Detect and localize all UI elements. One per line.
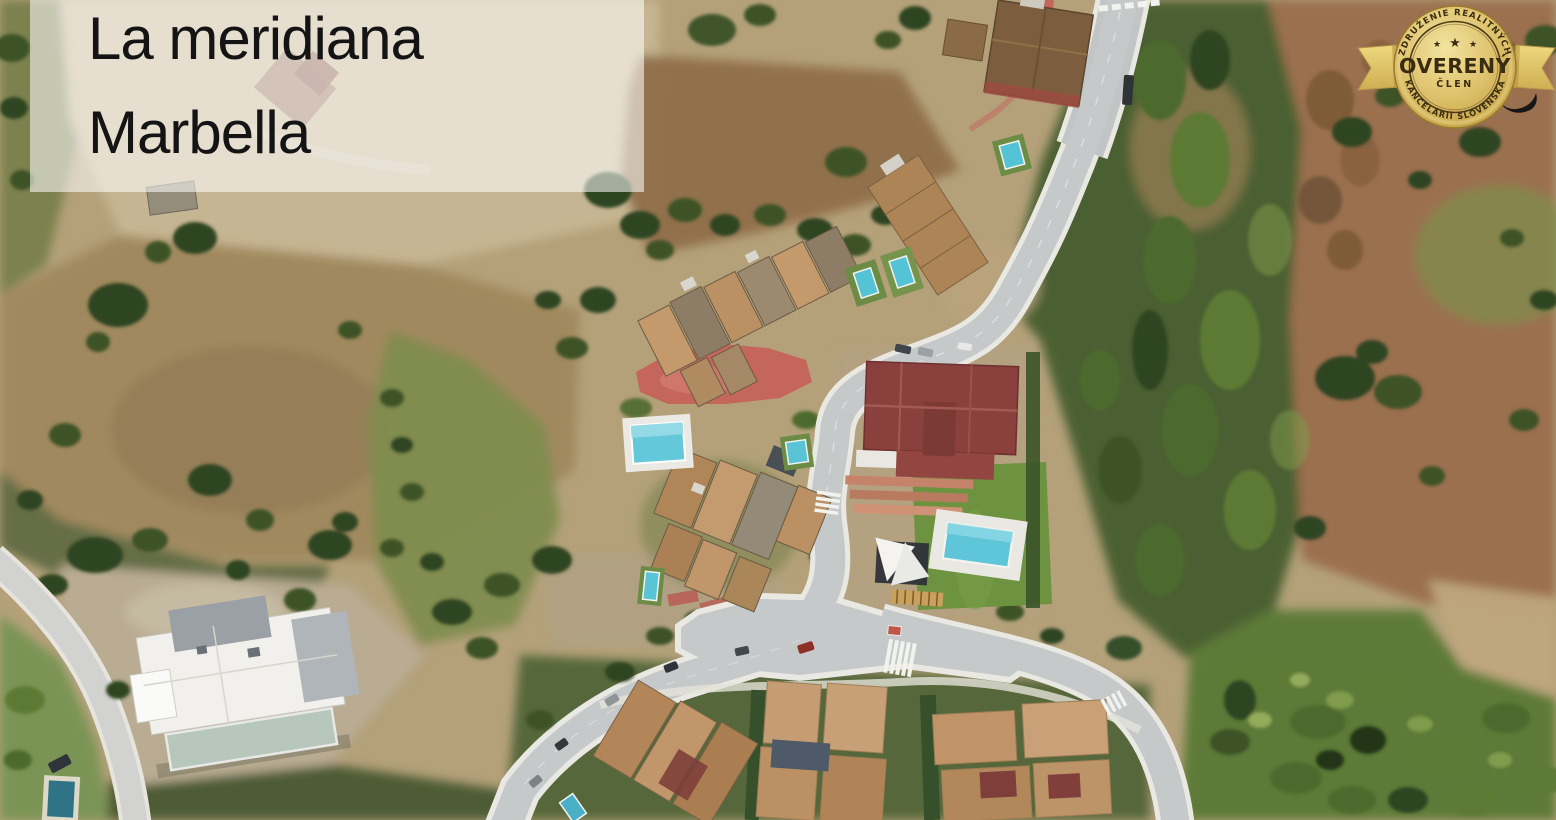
badge-subtitle: ČLEN: [1436, 78, 1473, 90]
star-icon: ★: [1449, 36, 1461, 51]
large-pool: [622, 414, 694, 473]
location-title-card: La meridiana Marbella: [30, 0, 644, 192]
villa-hedge: [1026, 352, 1040, 608]
location-city: Marbella: [88, 98, 310, 167]
star-icon: ★: [1469, 40, 1477, 50]
pool: [42, 775, 80, 820]
star-icon: ★: [1433, 40, 1441, 50]
hilltop-house: [984, 0, 1095, 108]
curb-marking: [888, 625, 902, 635]
verified-badge: ZDRUŽENIE REALITNÝCH KANCELÁRIÍ SLOVENSK…: [1350, 0, 1556, 150]
hilltop-house-small: [942, 19, 987, 61]
villa-pool: [928, 509, 1027, 581]
shade-sails: [873, 538, 931, 588]
badge-medal: ZDRUŽENIE REALITNÝCH KANCELÁRIÍ SLOVENSK…: [1394, 6, 1516, 128]
listing-photo: La meridiana Marbella ZDRUŽENIE REALITNÝ…: [0, 0, 1556, 820]
location-name: La meridiana: [88, 4, 423, 73]
pool: [637, 566, 665, 606]
badge-title: OVERENÝ: [1399, 53, 1512, 78]
pool: [780, 433, 814, 471]
